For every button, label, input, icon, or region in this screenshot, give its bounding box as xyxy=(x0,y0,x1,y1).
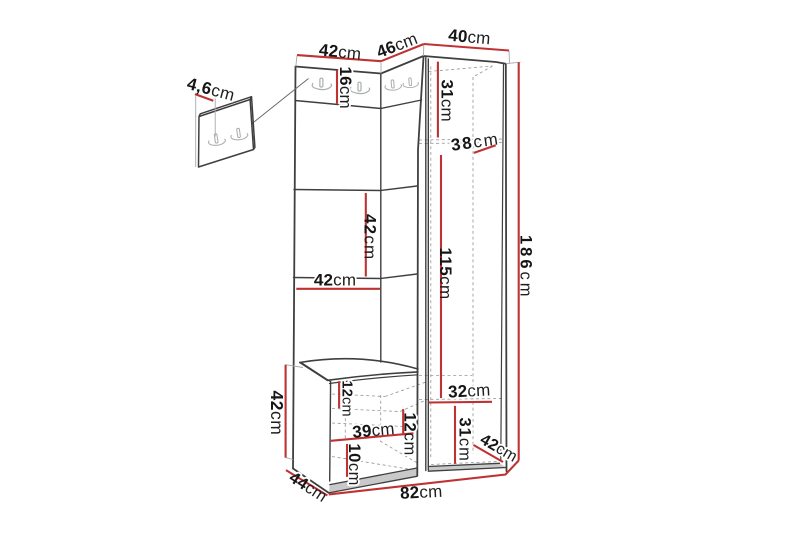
svg-text:39cm: 39cm xyxy=(352,419,396,442)
svg-text:32cm: 32cm xyxy=(448,380,491,401)
svg-text:42cm: 42cm xyxy=(314,271,356,290)
svg-text:10cm: 10cm xyxy=(345,444,363,486)
svg-text:82cm: 82cm xyxy=(400,482,443,503)
svg-text:12cm: 12cm xyxy=(338,381,354,417)
svg-text:186cm: 186cm xyxy=(516,235,534,300)
svg-text:42cm: 42cm xyxy=(361,214,380,260)
svg-text:40cm: 40cm xyxy=(448,26,492,49)
svg-text:16cm: 16cm xyxy=(336,67,355,109)
svg-text:115cm: 115cm xyxy=(436,248,455,300)
svg-text:12cm: 12cm xyxy=(400,413,418,457)
svg-text:42cm: 42cm xyxy=(267,391,287,436)
svg-text:31cm: 31cm xyxy=(456,418,474,462)
svg-text:31cm: 31cm xyxy=(438,80,457,122)
